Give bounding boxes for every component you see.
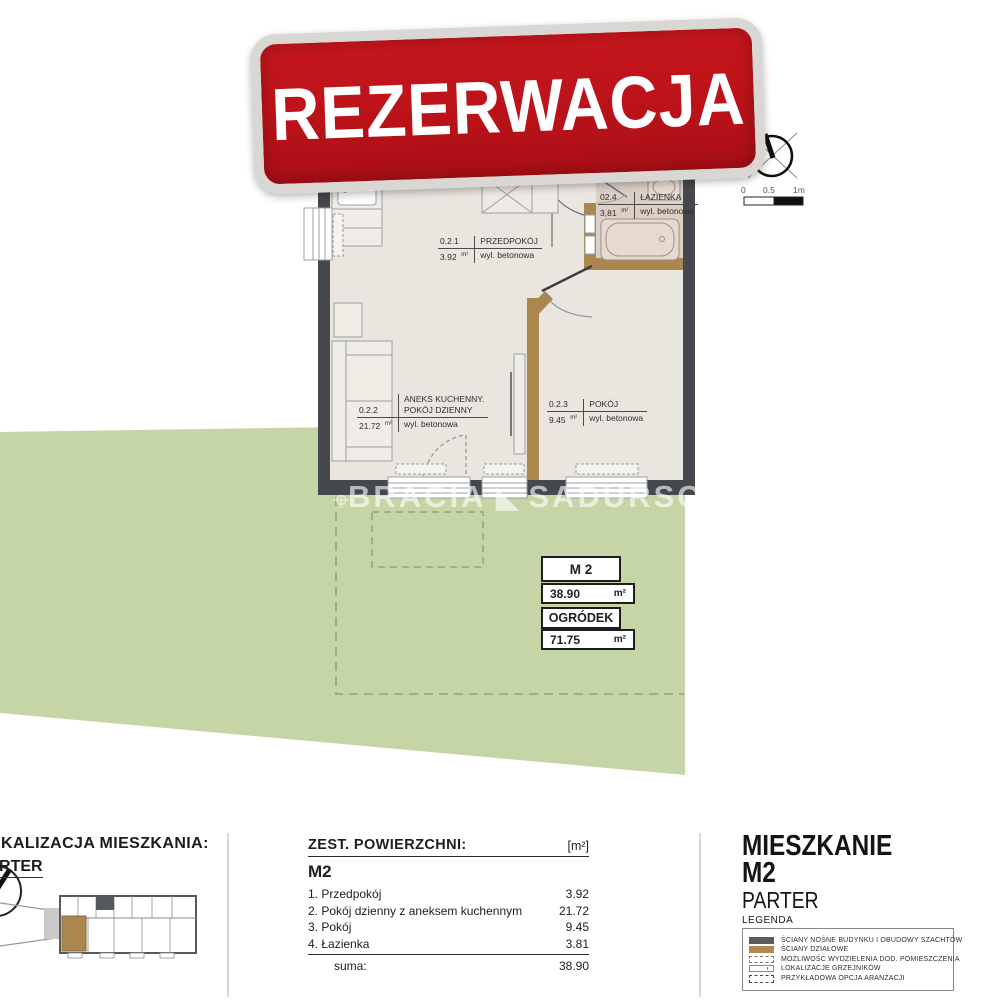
scale-bar — [744, 197, 803, 205]
area-summary-table: ZEST. POWIERZCHNI: [m²] M2 1. Przedpokój… — [308, 837, 589, 973]
brand-word-1: BRACIA — [348, 479, 487, 515]
apartment-floor: PARTER — [742, 888, 956, 912]
room-label-pokoj: 0.2.3 POKÓJ 9.45 m² wyl. betonowa — [547, 399, 647, 426]
scale-tick-1m: 1m — [793, 185, 805, 195]
legend-item: PRZYKŁADOWA OPCJA ARANŻACJI — [749, 975, 947, 983]
table-sum-row: suma: 38.90 — [308, 955, 589, 973]
table-title: ZEST. POWIERZCHNI: — [308, 837, 467, 853]
minimap-highlighted-unit — [62, 916, 86, 951]
legend-swatch-partition-walls — [749, 946, 774, 953]
reservation-banner: REZERWACJA — [249, 17, 766, 195]
location-section: LOKALIZACJA MIESZKANIA: PARTER — [0, 835, 209, 878]
legend-item: ŚCIANY DZIAŁOWE — [749, 946, 947, 953]
table-row: 4. Łazienka 3.81 — [308, 936, 589, 956]
table-row: 3. Pokój 9.45 — [308, 919, 589, 936]
apartment-title-line2: M2 — [742, 860, 956, 887]
room-label-lazienka: 02.4 ŁAZIENKA 3,81 m² wyl. betonowa — [598, 192, 698, 219]
legend-item: ŚCIANY NOŚNE BUDYNKU I OBUDOWY SZACHTÓW — [749, 937, 947, 944]
apartment-title-line1: MIESZKANIE — [742, 833, 956, 860]
legend-item: LOKALIZACJE GRZEJNIKÓW — [749, 965, 947, 972]
brand-logo-icon: ◣ — [496, 479, 520, 515]
brand-watermark: BRACIA ◣ SADURSCY — [348, 479, 726, 515]
legend-title: LEGENDA — [742, 915, 997, 926]
floor-plan-page: REZERWACJA PN 0 0.5 1m 0.2.1 PRZEDPOKÓJ … — [0, 0, 1000, 1000]
legend-swatch-possible-room — [749, 956, 774, 963]
unit-name-box: M 2 — [541, 556, 621, 582]
minimap-stairwell — [96, 896, 114, 910]
title-block: MIESZKANIE M2 PARTER LEGENDA ŚCIANY NOŚN… — [742, 833, 997, 991]
location-minimap — [0, 866, 196, 958]
table-unit-header: [m²] — [567, 839, 589, 853]
reservation-banner-text: REZERWACJA — [270, 55, 747, 156]
garden-area-box: 71.75 m² — [541, 629, 635, 650]
legend-swatch-arrangement — [749, 975, 774, 983]
location-title: LOKALIZACJA MIESZKANIA: — [0, 835, 209, 853]
room-label-przedpokoj: 0.2.1 PRZEDPOKÓJ 3.92 m² wyl. betonowa — [438, 236, 542, 263]
garden-label-box: OGRÓDEK — [541, 607, 621, 629]
scale-tick-0: 0 — [741, 185, 746, 195]
legend-item: MOŻLIWOŚĆ WYDZIELENIA DOD. POMIESZCZENIA — [749, 956, 947, 963]
bathtub-icon — [601, 219, 679, 260]
legend-swatch-bearing-walls — [749, 937, 774, 944]
table-row: 2. Pokój dzienny z aneksem kuchennym 21.… — [308, 903, 589, 920]
legend-box: ŚCIANY NOŚNE BUDYNKU I OBUDOWY SZACHTÓW … — [742, 928, 954, 991]
table-row: 1. Przedpokój 3.92 — [308, 886, 589, 903]
location-floor-label: PARTER — [0, 858, 43, 878]
unit-area-box: 38.90 m² — [541, 583, 635, 604]
window-left — [304, 208, 332, 260]
scale-tick-05: 0.5 — [763, 185, 775, 195]
room-label-pokoj-dzienny: 0.2.2 ANEKS KUCHENNY. POKÓJ DZIENNY 21.7… — [357, 394, 488, 432]
apartment-code: M2 — [308, 862, 589, 882]
brand-word-2: SADURSCY — [528, 479, 726, 515]
legend-swatch-radiators — [749, 965, 774, 972]
